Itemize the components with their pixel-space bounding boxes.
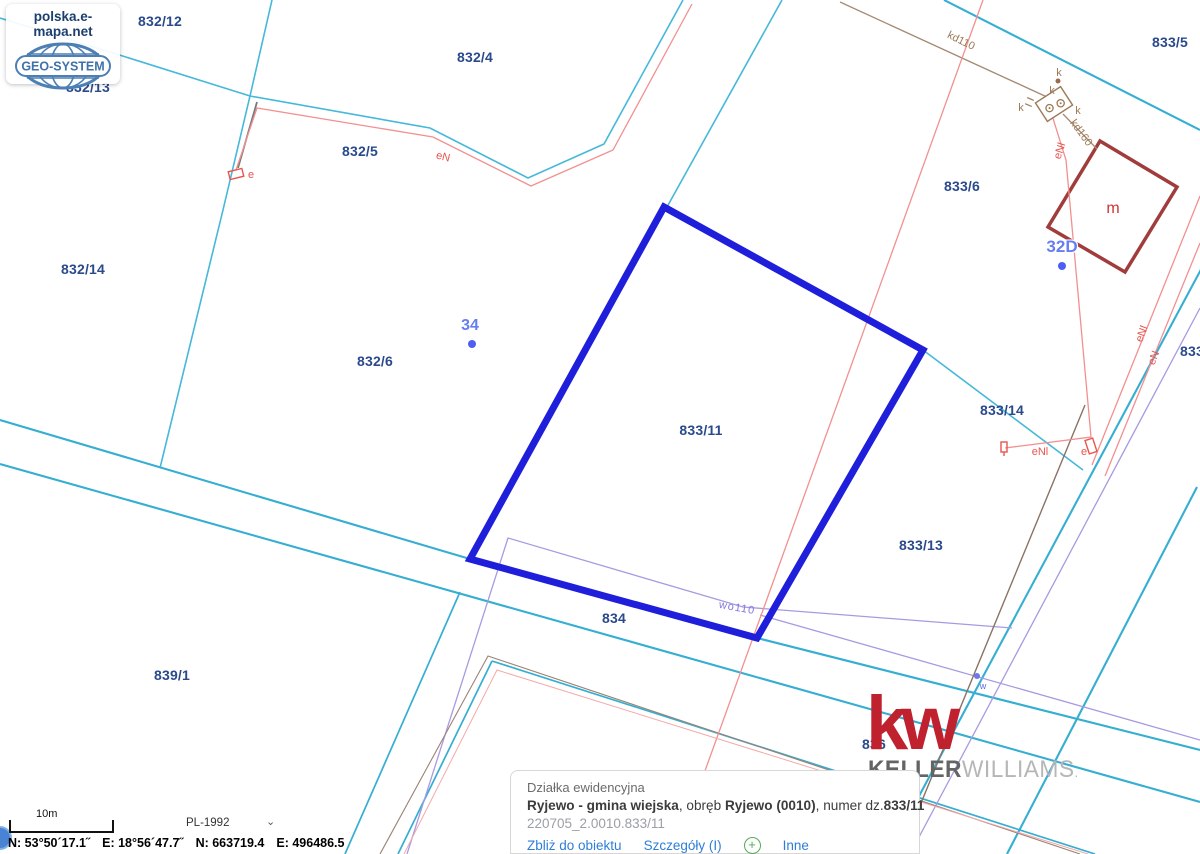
number-prefix: , numer dz. [816,798,884,813]
add-plus-icon[interactable]: + [744,837,761,854]
coord-grid-n: N: 663719.4 [196,836,265,850]
coord-grid-e: E: 496486.5 [276,836,344,850]
point-markers [468,79,1066,680]
utility-label-enl-mid: eNl [1032,446,1049,458]
chevron-down-icon[interactable]: ⌄ [266,815,275,828]
more-link[interactable]: Inne [783,838,809,853]
map-viewport[interactable]: 832/12 832/13 832/4 832/5 832/14 832/6 8… [0,0,1200,854]
parcel-label-832-4: 832/4 [457,49,493,65]
parcel-label-833: 833 [1180,343,1200,359]
parcel-number: 833/11 [884,798,925,813]
commune-name: Ryjewo - gmina wiejska [527,798,679,813]
scale-bar [0,0,300,854]
kw-monogram: kw [866,688,1082,760]
parcel-label-833-13: 833/13 [899,537,943,553]
utility-label-k2: k [1049,85,1055,97]
parcel-label-833-6: 833/6 [944,178,980,194]
utility-label-e-mid: e [1081,446,1087,458]
details-link[interactable]: Szczegóły (I) [644,838,722,853]
obreb-prefix: , obręb [679,798,725,813]
parcel-label-832-6: 832/6 [357,353,393,369]
coord-geo-n: N: 53°50´17.1˝ [8,836,90,850]
parcel-label-833-11: 833/11 [679,422,722,438]
building-label-m: m [1106,200,1119,218]
utility-label-k4: k [1075,105,1081,117]
parcel-label-832-5: 832/5 [342,143,378,159]
address-label-34: 34 [461,317,479,335]
parcel-label-833-14: 833/14 [980,402,1024,418]
parcel-identifier: 220705_2.0010.833/11 [527,816,903,831]
address-label-32d: 32D [1046,237,1077,257]
panel-actions: Zbliż do obiektu Szczegóły (I) + Inne [527,837,903,854]
utility-label-k1: k [1056,67,1062,79]
parcel-label-834: 834 [602,610,626,626]
parcel-info-panel: Działka ewidencyjna Ryjewo - gmina wiejs… [510,770,920,854]
coord-geo-e: E: 18°56´47.7˝ [102,836,183,850]
scale-label: 10m [36,808,57,820]
manhole-symbol [1023,79,1073,126]
crs-selector[interactable]: PL-1992 [186,817,229,829]
coordinates-readout: N: 53°50´17.1˝E: 18°56´47.7˝N: 663719.4E… [8,836,356,850]
utility-label-k3: k [1018,102,1024,114]
zoom-to-object-link[interactable]: Zbliż do obiektu [527,838,622,853]
trademark-dot: . [1075,764,1079,780]
parcel-description: Ryjewo - gmina wiejska, obręb Ryjewo (00… [527,798,903,813]
williams-wordmark: WILLIAMS [962,756,1075,783]
panel-title: Działka ewidencyjna [527,780,903,795]
obreb-name: Ryjewo (0010) [725,798,816,813]
parcel-label-833-5: 833/5 [1152,34,1188,50]
